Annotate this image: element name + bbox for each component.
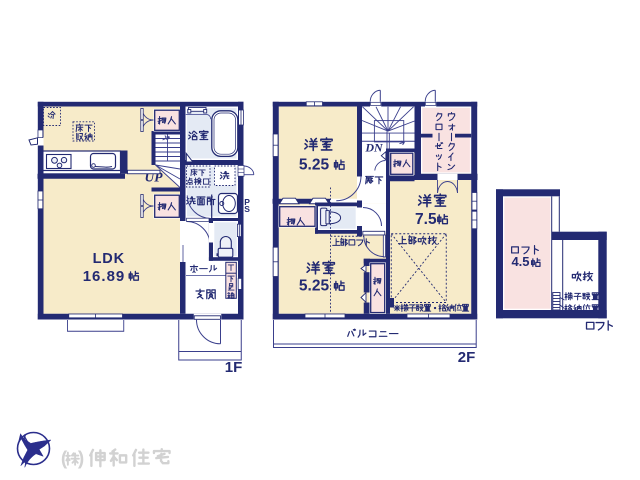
svg-text:DN: DN [364, 140, 384, 154]
svg-text:S: S [244, 204, 250, 214]
svg-text:5.25: 5.25 [299, 278, 330, 295]
svg-text:5.25: 5.25 [299, 157, 330, 174]
svg-text:): ) [78, 449, 84, 470]
svg-text:2F: 2F [458, 349, 476, 366]
svg-text:LDK: LDK [93, 251, 125, 267]
svg-text:16.89: 16.89 [83, 268, 126, 285]
svg-text:4.5: 4.5 [511, 254, 529, 269]
svg-text:7.5: 7.5 [415, 211, 437, 228]
svg-text:1F: 1F [225, 359, 243, 376]
